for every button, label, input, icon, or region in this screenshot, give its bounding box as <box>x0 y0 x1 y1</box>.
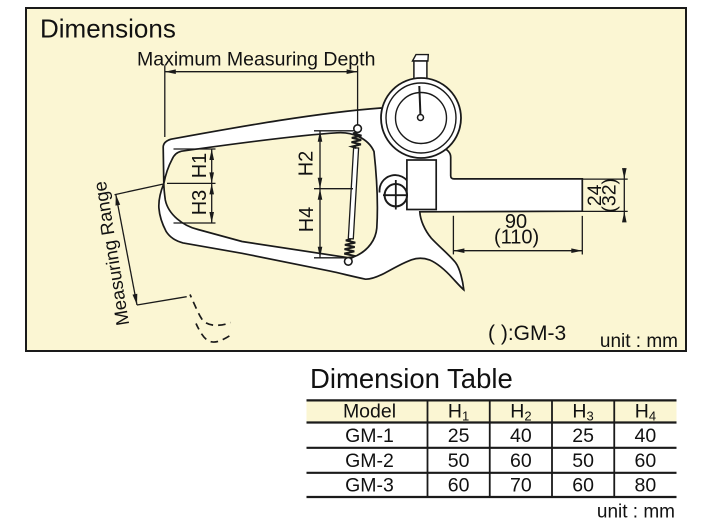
svg-text:GM-2: GM-2 <box>345 450 394 472</box>
svg-text:25: 25 <box>448 425 470 447</box>
svg-text:Model: Model <box>343 401 396 423</box>
svg-text:80: 80 <box>635 475 657 497</box>
svg-text:50: 50 <box>572 450 594 472</box>
svg-text:unit : mm: unit : mm <box>600 331 678 352</box>
svg-text:GM-3: GM-3 <box>345 475 394 497</box>
svg-text:60: 60 <box>510 450 532 472</box>
svg-text:unit : mm: unit : mm <box>597 502 675 523</box>
svg-text:50: 50 <box>448 450 470 472</box>
svg-text:40: 40 <box>635 425 657 447</box>
svg-text:H4: H4 <box>296 207 318 233</box>
svg-text:Dimension Table: Dimension Table <box>310 363 513 394</box>
svg-text:(110): (110) <box>494 227 539 249</box>
svg-text:H3: H3 <box>189 190 211 216</box>
svg-text:Maximum Measuring Depth: Maximum Measuring Depth <box>137 49 375 71</box>
svg-text:60: 60 <box>635 450 657 472</box>
svg-text:H1: H1 <box>189 153 211 179</box>
svg-text:Dimensions: Dimensions <box>40 14 176 44</box>
svg-text:25: 25 <box>572 425 594 447</box>
svg-text:H2: H2 <box>295 151 317 177</box>
svg-text:40: 40 <box>510 425 532 447</box>
svg-text:GM-1: GM-1 <box>345 425 394 447</box>
svg-text:60: 60 <box>448 475 470 497</box>
svg-text:(32): (32) <box>599 178 621 213</box>
svg-text:70: 70 <box>510 475 532 497</box>
svg-text:60: 60 <box>572 475 594 497</box>
svg-text:( ):GM-3: ( ):GM-3 <box>488 322 566 345</box>
